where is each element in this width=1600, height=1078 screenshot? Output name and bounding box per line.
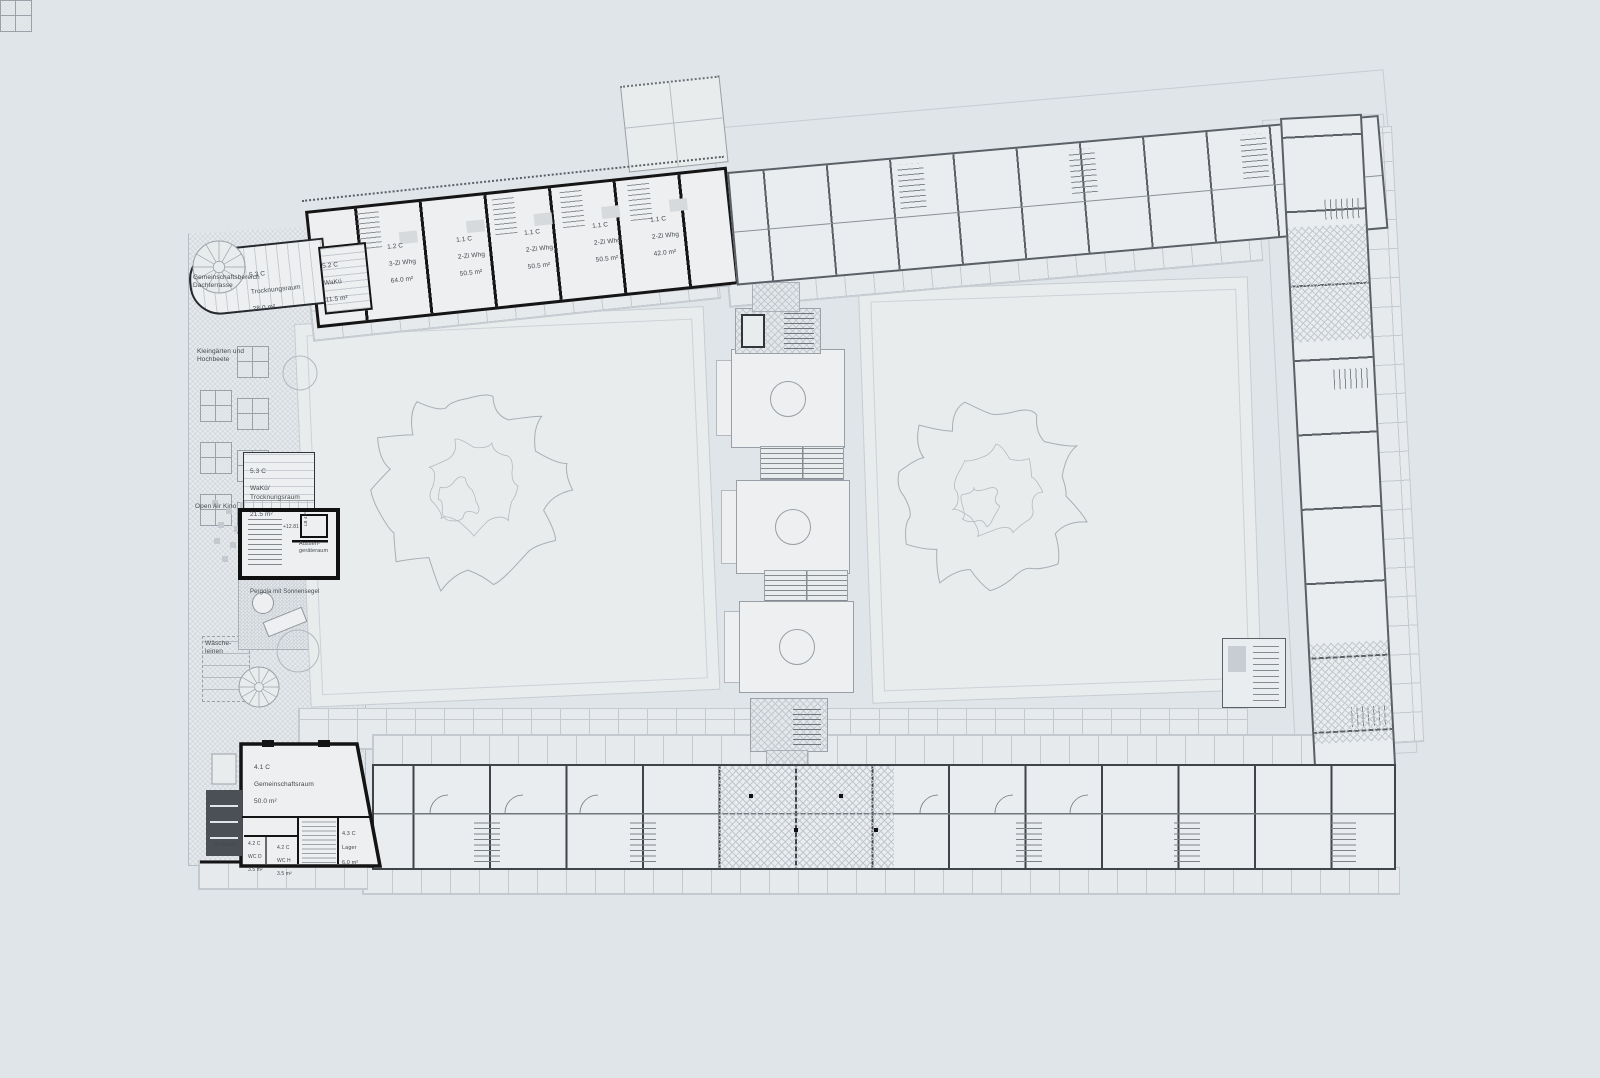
room-name: WC D: [248, 854, 263, 861]
room-code: 1.1 C: [592, 221, 620, 232]
label-gardens: Kleingärten und Hochbeete: [197, 348, 244, 365]
label-grill: Grillstelle: [214, 842, 238, 849]
room-code: 5.2 C: [322, 261, 349, 272]
room-area: 50.5 m²: [527, 261, 555, 272]
courtyard-right: [858, 276, 1262, 703]
room-area: 28.0 m²: [252, 301, 303, 315]
skylight-pavilion-2: [736, 480, 850, 574]
room-name: 2-Zi Whg: [652, 231, 680, 242]
room-name: 2-Zi Whg: [594, 237, 622, 248]
spine-stair-upper: [760, 446, 844, 480]
room-name: WaKü/ Trocknungsraum: [250, 485, 312, 502]
skylight-circle: [779, 629, 815, 665]
balcony-tiles-bottom-wing-bottom: [362, 867, 1400, 895]
room-code: 4.3 C: [342, 831, 358, 838]
room-code: 1.1 C: [650, 215, 678, 226]
skylight-pavilion-3: [739, 601, 854, 693]
room-code: 5.3 C: [250, 468, 312, 476]
room-area: 11.5 m²: [325, 294, 352, 305]
label-open-air-cinema: Open Air Kino: [195, 503, 236, 511]
label-pergola: Pergola mit Sonnensegel: [250, 589, 319, 597]
room-code: 5.3 C: [249, 267, 300, 281]
skylight-circle: [770, 381, 806, 417]
room-code: 4.2 C: [248, 841, 263, 848]
room-label-community-room: 4.1 C Gemeinschaftsraum 50.0 m²: [254, 756, 314, 815]
garden-bed: [200, 390, 232, 422]
elevator-shaft: [741, 314, 765, 348]
room-area: 6.0 m²: [342, 860, 358, 867]
garden-bed: [200, 442, 232, 474]
room-label-wc-h: 4.2 C WC H 3.5 m²: [277, 838, 292, 884]
room-area: 50.0 m²: [254, 798, 314, 806]
room-name: 3-Zi Whg: [389, 258, 417, 269]
room-label-wc-d: 4.2 C WC D 3.5 m²: [248, 834, 263, 880]
room-code: 4.2 C: [277, 845, 292, 852]
label-outdoor-equipment-room: Aussen- geräteraum: [299, 541, 328, 554]
spine-bottom-stairwell: [750, 698, 828, 752]
room-name: Lager: [342, 845, 358, 852]
garden-bed: [0, 0, 32, 32]
room-label-drying-room: 5.3 C Trocknungsraum 28.0 m²: [248, 259, 304, 323]
room-name: WaKü: [324, 277, 351, 288]
courtyard-left: [294, 306, 720, 708]
stairwell-bottom-right: [1222, 638, 1286, 708]
label-clotheslines: Wäsche- leinen: [205, 640, 231, 657]
courtyard-right-lawn: [870, 289, 1249, 692]
room-name: Gemeinschaftsraum: [254, 781, 314, 789]
skylight-pavilion-1: [731, 349, 845, 448]
room-area: 50.5 m²: [595, 254, 623, 265]
room-code: 1.1 C: [456, 235, 484, 246]
room-code: 1.2 C: [387, 242, 415, 253]
room-name: 2-Zi Whg: [526, 244, 554, 255]
spine-top-landing: [752, 282, 800, 312]
garden-bed: [237, 398, 269, 430]
room-name: 2-Zi Whg: [458, 251, 486, 262]
courtyard-left-lawn: [307, 319, 708, 695]
room-area: 21.5 m²: [250, 511, 312, 519]
room-label-storage: 4.3 C Lager 6.0 m²: [342, 824, 358, 874]
room-area: 42.0 m²: [653, 248, 681, 259]
skylight-circle: [775, 509, 811, 545]
room-name: Trocknungsraum: [251, 284, 302, 298]
room-code: 4.1 C: [254, 764, 314, 772]
balcony-tiles-bottom-wing-top: [372, 734, 1392, 766]
room-name: WC H: [277, 858, 292, 865]
room-label-laundry-5-3: 5.3 C WaKü/ Trocknungsraum 21.5 m²: [250, 460, 312, 528]
bottom-wing: [372, 764, 1396, 870]
room-area: 64.0 m²: [390, 275, 418, 286]
spine-stair-lower: [764, 570, 848, 602]
room-area: 50.5 m²: [459, 268, 487, 279]
room-area: 3.5 m²: [277, 871, 292, 878]
room-code: 1.1 C: [524, 228, 552, 239]
room-area: 3.5 m²: [248, 867, 263, 874]
